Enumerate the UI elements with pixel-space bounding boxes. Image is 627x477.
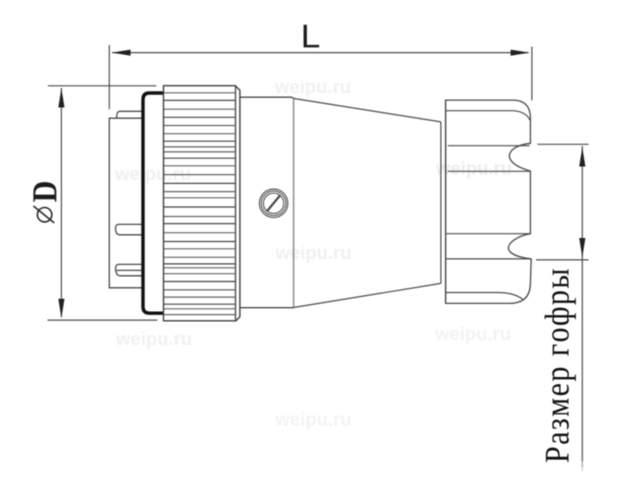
svg-text:weipu.ru: weipu.ru xyxy=(435,157,512,178)
svg-text:weipu.ru: weipu.ru xyxy=(115,328,192,349)
svg-text:weipu.ru: weipu.ru xyxy=(434,323,511,344)
svg-text:weipu.ru: weipu.ru xyxy=(275,409,352,430)
svg-text:weipu.ru: weipu.ru xyxy=(275,242,352,263)
svg-text:weipu.ru: weipu.ru xyxy=(274,76,351,97)
